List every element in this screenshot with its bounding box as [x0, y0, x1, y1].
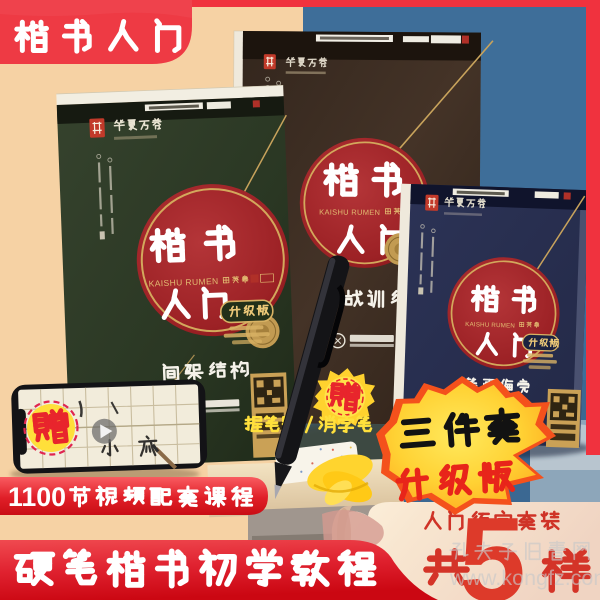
- svg-text:1100: 1100: [8, 482, 66, 512]
- svg-text:KAISHU RUMEN: KAISHU RUMEN: [319, 208, 380, 217]
- svg-text:www.kongfz.com: www.kongfz.com: [449, 566, 600, 590]
